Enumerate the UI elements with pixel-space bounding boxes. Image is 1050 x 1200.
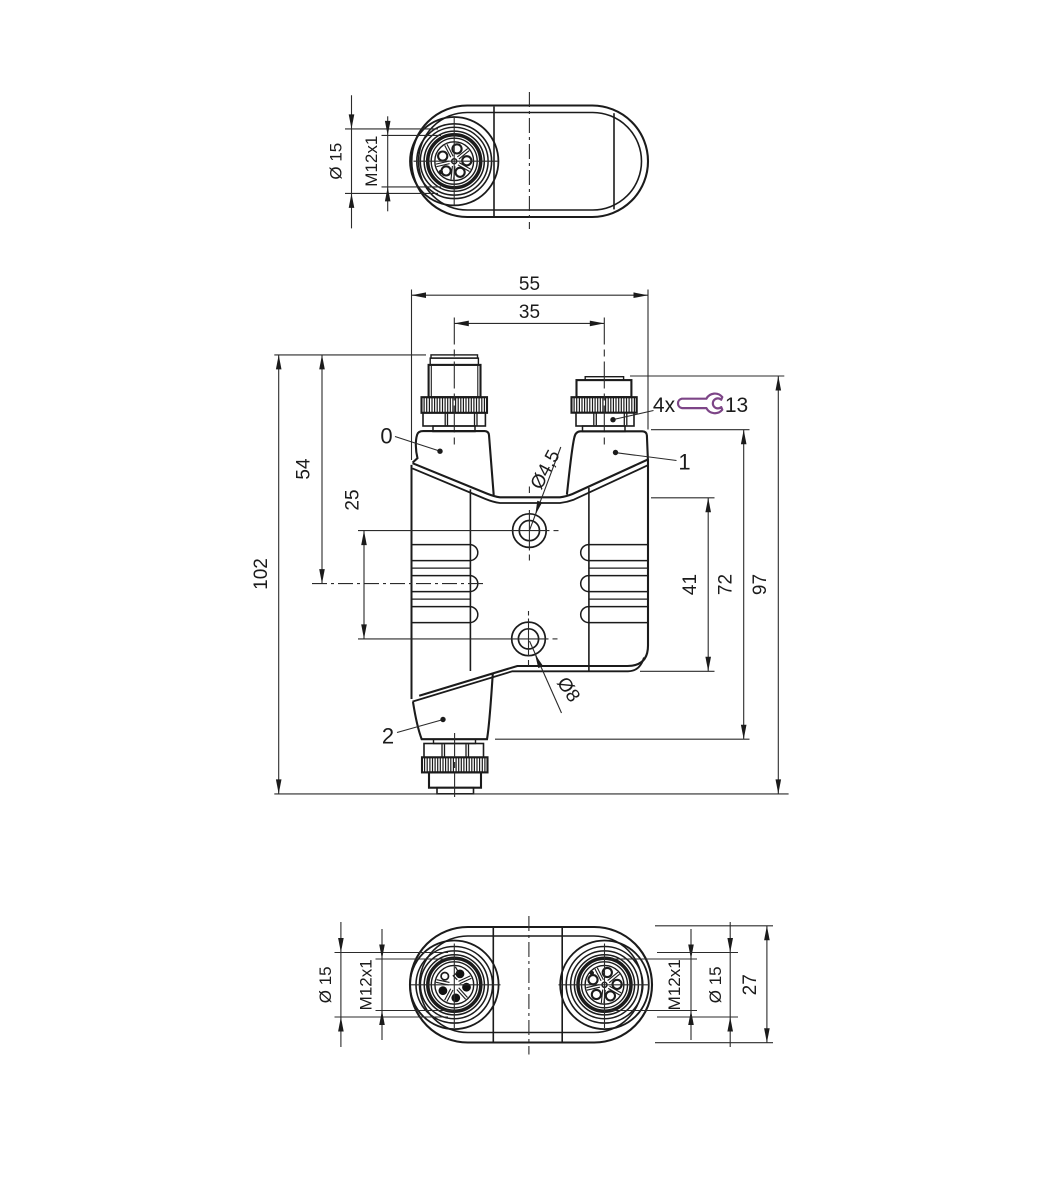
svg-text:4x: 4x [653,394,676,417]
svg-text:M12x1: M12x1 [357,959,376,1010]
svg-text:Ø 15: Ø 15 [327,143,346,180]
svg-text:72: 72 [716,574,737,595]
svg-text:35: 35 [519,302,540,323]
svg-text:102: 102 [251,558,272,590]
svg-text:Ø 15: Ø 15 [706,966,725,1003]
svg-text:M12x1: M12x1 [362,136,381,187]
svg-text:2: 2 [382,724,394,749]
svg-text:Ø8: Ø8 [552,674,584,707]
svg-text:41: 41 [680,574,701,595]
svg-text:0: 0 [380,424,392,449]
svg-text:97: 97 [750,574,771,595]
svg-text:54: 54 [294,458,315,480]
svg-text:M12x1: M12x1 [665,959,684,1010]
svg-text:13: 13 [725,394,748,417]
svg-text:27: 27 [740,974,761,995]
svg-text:1: 1 [678,450,690,475]
svg-text:55: 55 [519,274,540,295]
svg-text:Ø 15: Ø 15 [316,966,335,1003]
svg-text:Ø4,5: Ø4,5 [527,447,565,493]
svg-text:25: 25 [343,489,364,510]
